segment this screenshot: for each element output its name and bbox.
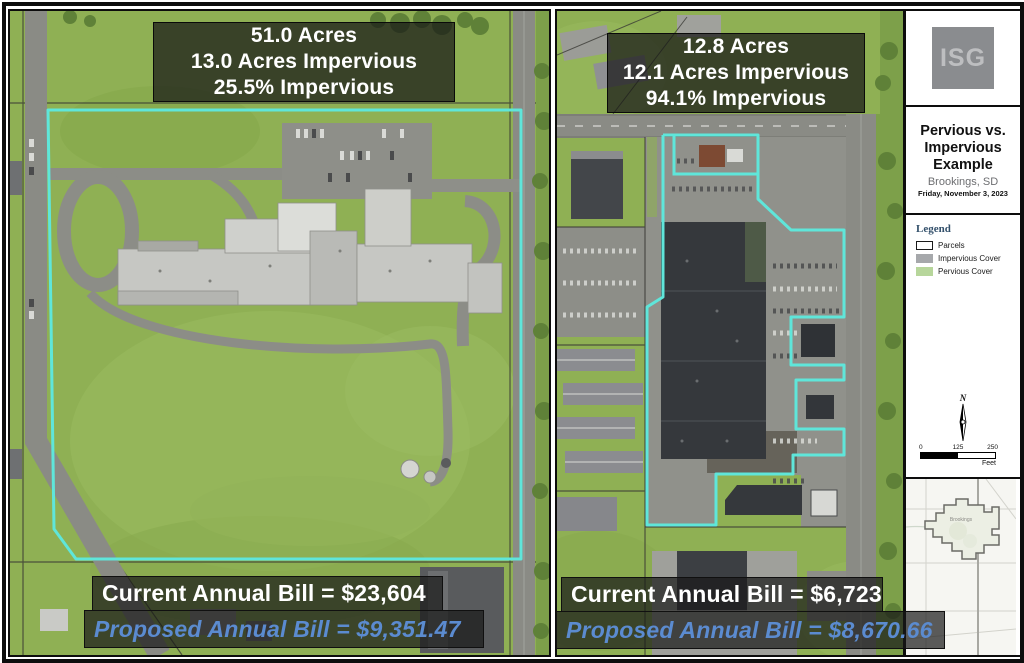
scale-bar: 0 125 250 Feet bbox=[920, 444, 996, 467]
isg-logo: ISG bbox=[932, 27, 994, 89]
scale-tick-labels: 0 125 250 bbox=[920, 444, 996, 452]
left-percent-impervious: 25.5% Impervious bbox=[154, 75, 454, 101]
legend-item-pervious-cover: Pervious Cover bbox=[906, 265, 1020, 278]
map-title-line-3: Example bbox=[933, 157, 993, 174]
left-current-annual-bill: Current Annual Bill = $23,604 bbox=[92, 576, 443, 611]
left-acres-impervious: 13.0 Acres Impervious bbox=[154, 49, 454, 75]
map-date: Friday, November 3, 2023 bbox=[918, 189, 1008, 198]
right-acres: 12.8 Acres bbox=[608, 34, 864, 60]
map-document-page: 51.0 Acres 13.0 Acres Impervious 25.5% I… bbox=[0, 0, 1024, 663]
right-current-annual-bill: Current Annual Bill = $6,723 bbox=[561, 577, 883, 612]
impervious-cover-swatch-icon bbox=[916, 254, 933, 263]
scale-unit-label: Feet bbox=[920, 460, 996, 467]
north-label: N bbox=[960, 393, 967, 403]
right-acres-impervious: 12.1 Acres Impervious bbox=[608, 60, 864, 86]
right-proposed-annual-bill: Proposed Annual Bill = $8,670.66 bbox=[556, 611, 945, 649]
scale-bar-fill bbox=[921, 453, 958, 458]
aerial-map-left-pervious-parcel bbox=[8, 9, 551, 657]
north-arrow-icon bbox=[955, 403, 971, 443]
left-acres: 51.0 Acres bbox=[154, 23, 454, 49]
logo-box: ISG bbox=[906, 11, 1020, 107]
legend-item-impervious-cover: Impervious Cover bbox=[906, 252, 1020, 265]
right-parcel-stats-overlay: 12.8 Acres 12.1 Acres Impervious 94.1% I… bbox=[607, 33, 865, 113]
aerial-imagery-left bbox=[10, 11, 549, 655]
map-layout-sidebar: ISG Pervious vs. Impervious Example Broo… bbox=[904, 9, 1022, 657]
legend-box: Legend Parcels Impervious Cover Pervious… bbox=[906, 215, 1020, 479]
right-percent-impervious: 94.1% Impervious bbox=[608, 86, 864, 112]
isg-logo-text: ISG bbox=[940, 44, 986, 73]
map-title-line-2: Impervious bbox=[924, 140, 1001, 157]
left-proposed-annual-bill: Proposed Annual Bill = $9,351.47 bbox=[84, 610, 484, 648]
map-title-line-1: Pervious vs. bbox=[920, 123, 1005, 140]
locator-city-label: Brookings bbox=[950, 517, 973, 523]
left-parcel-stats-overlay: 51.0 Acres 13.0 Acres Impervious 25.5% I… bbox=[153, 22, 455, 102]
north-arrow: N bbox=[906, 393, 1020, 443]
map-location: Brookings, SD bbox=[928, 176, 998, 188]
legend-item-parcels: Parcels bbox=[906, 239, 1020, 252]
title-box: Pervious vs. Impervious Example Brooking… bbox=[906, 107, 1020, 215]
legend-title: Legend bbox=[906, 215, 1020, 239]
pervious-cover-swatch-icon bbox=[916, 267, 933, 276]
parcels-swatch-icon bbox=[916, 241, 933, 250]
scale-bar-track bbox=[920, 452, 996, 459]
